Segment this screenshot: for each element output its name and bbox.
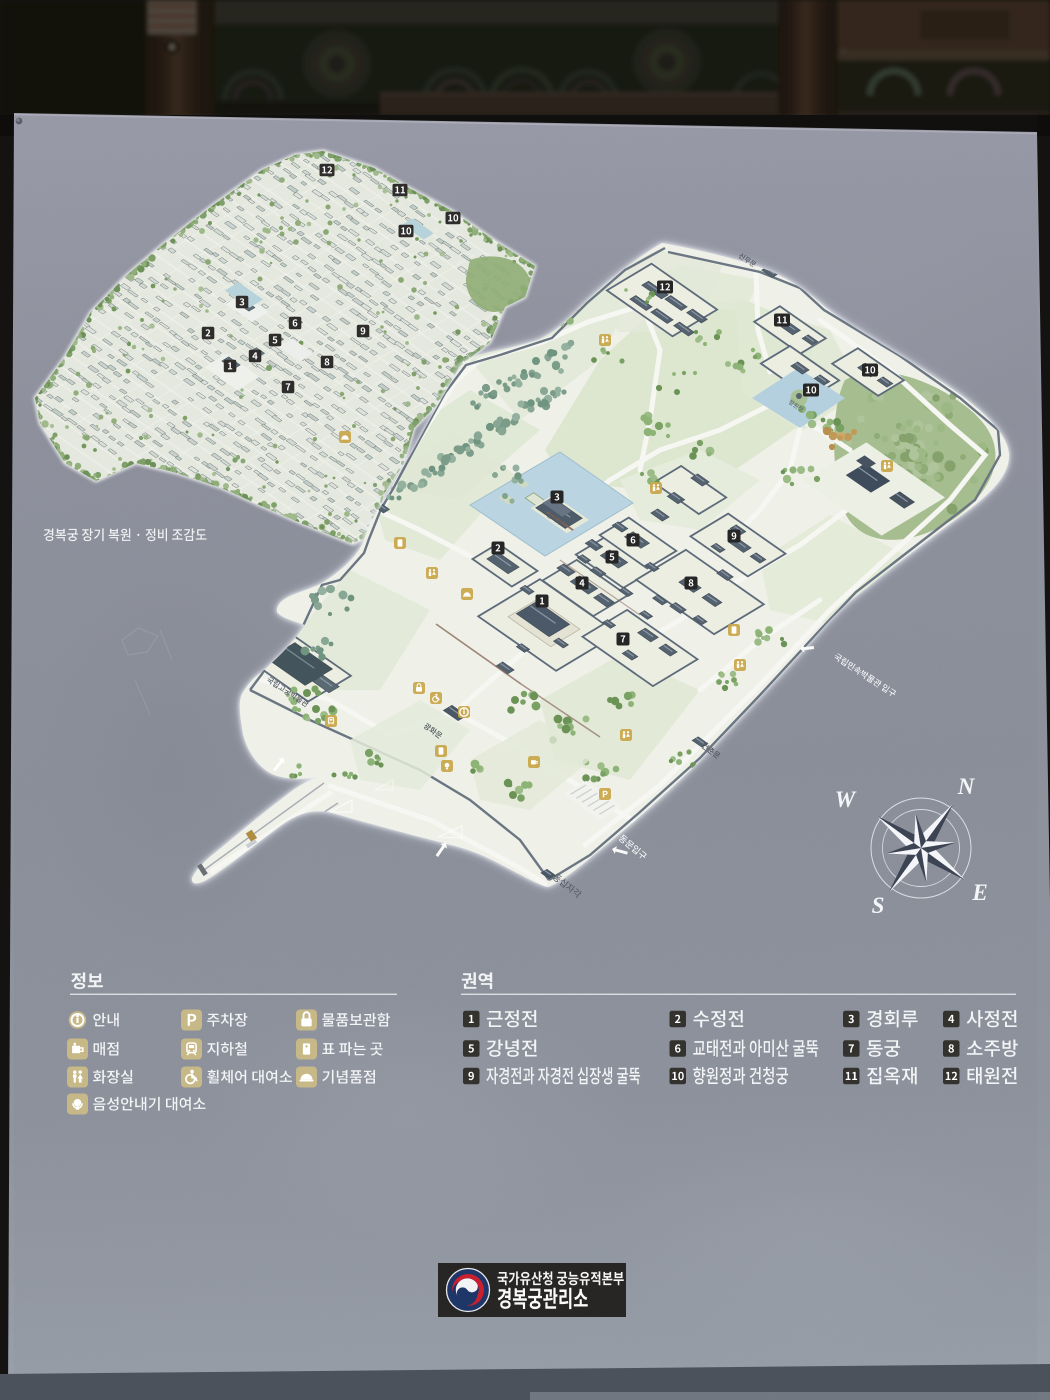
svg-text:W: W bbox=[835, 787, 857, 812]
svg-text:S: S bbox=[872, 893, 885, 918]
svg-text:N: N bbox=[957, 774, 976, 799]
svg-text:E: E bbox=[971, 880, 987, 905]
